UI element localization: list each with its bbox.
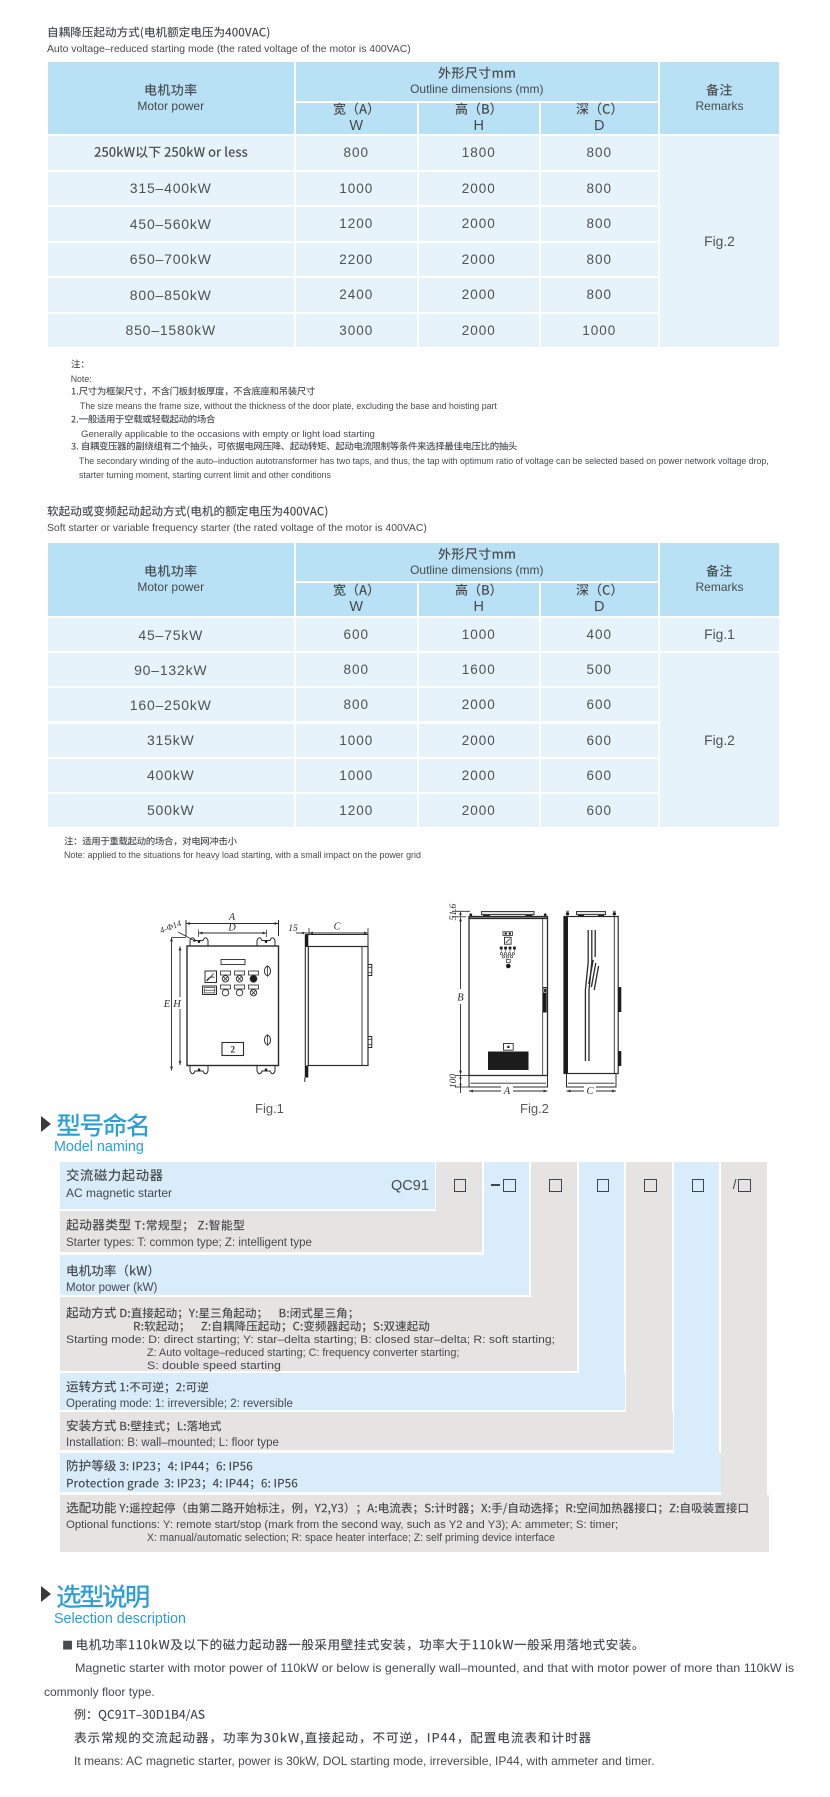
svg-text:C: C [334,922,341,933]
svg-text:51.6: 51.6 [449,903,459,920]
svg-text:C: C [586,1086,594,1097]
svg-text:B: B [457,993,464,1004]
svg-text:E: E [163,999,171,1010]
svg-text:A: A [228,912,236,923]
svg-text:2: 2 [230,1045,235,1055]
svg-text:A: A [503,1086,511,1097]
svg-text:15: 15 [288,924,298,934]
svg-text:D: D [227,923,236,934]
svg-text:H: H [172,999,182,1010]
